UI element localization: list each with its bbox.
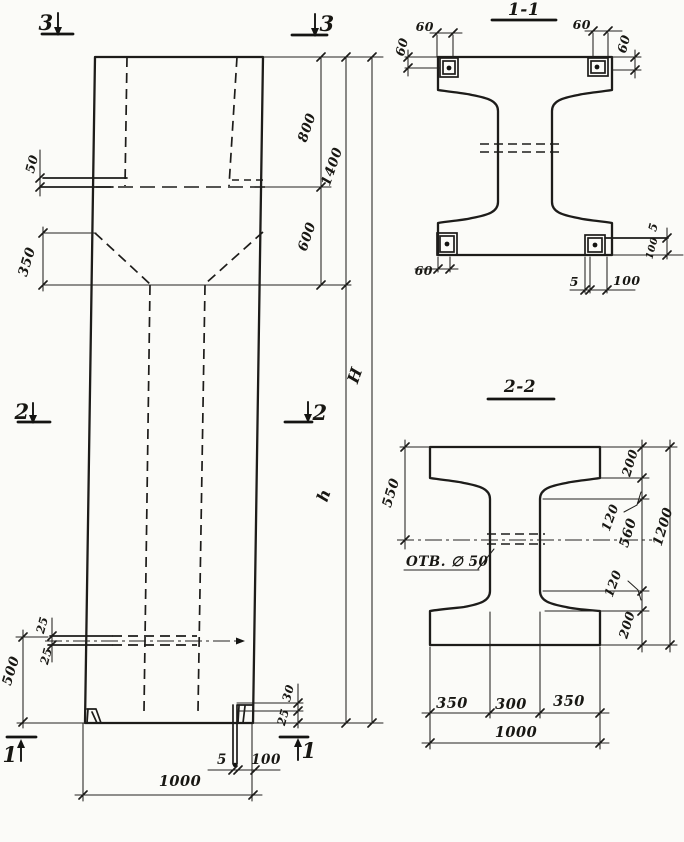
dim-200-top: 200 bbox=[618, 447, 641, 479]
section-2-label-left: 2 bbox=[13, 399, 29, 424]
section-2-label-right: 2 bbox=[311, 400, 327, 425]
anchor-stud-dot bbox=[447, 66, 452, 71]
section-3-label-right: 3 bbox=[319, 11, 334, 36]
dim-60-top-right: 60 bbox=[573, 17, 591, 32]
anchor-stud-dot bbox=[595, 65, 600, 70]
dim-1000-bottom: 1000 bbox=[495, 724, 537, 741]
i-section-outline bbox=[438, 57, 612, 255]
section-marker-arrows bbox=[21, 13, 315, 761]
i-section-outline bbox=[430, 447, 600, 645]
anchor-stud-dot bbox=[445, 242, 450, 247]
marker-arrowhead-icon bbox=[17, 739, 25, 748]
section-2-2: 2-2 550 ОТВ. ∅ 50 200 120 560 120 200 12… bbox=[379, 377, 677, 749]
drawing-page: 3 3 2 2 1 1 50 350 800 1400 600 H h 25 2… bbox=[0, 0, 684, 842]
dim-60-top-left: 60 bbox=[416, 19, 434, 34]
dim-5-side: 5 bbox=[645, 221, 661, 233]
section-2-2-title: 2-2 bbox=[503, 377, 536, 397]
centerline-arrowhead-icon bbox=[236, 638, 245, 645]
dim-plate-25-lower: 25 bbox=[37, 646, 55, 667]
hole-hidden-lines bbox=[480, 144, 563, 152]
column-details bbox=[40, 178, 253, 764]
dim-1200-right: 1200 bbox=[650, 505, 677, 548]
section-marker-bars bbox=[7, 34, 327, 737]
section-1-label-left: 1 bbox=[2, 742, 17, 767]
dim-550-left: 550 bbox=[379, 476, 403, 509]
column-outline bbox=[85, 57, 263, 723]
dim-width-1000: 1000 bbox=[159, 773, 201, 790]
section-1-1: 1-1 60 60 60 60 60 5 100 5 100 bbox=[392, 0, 683, 294]
dim-shaft-h: h bbox=[313, 486, 335, 504]
hole-hidden-lines bbox=[487, 534, 545, 544]
section-1-label-right: 1 bbox=[301, 738, 316, 763]
elevation-view: 3 3 2 2 1 1 50 350 800 1400 600 H h 25 2… bbox=[0, 10, 383, 801]
drawing-canvas: 3 3 2 2 1 1 50 350 800 1400 600 H h 25 2… bbox=[0, 0, 684, 842]
dim-cap-600: 600 bbox=[295, 220, 320, 253]
dim-100-side: 100 bbox=[644, 236, 660, 260]
anchor-stud-dot bbox=[593, 243, 598, 248]
dim-60-right: 60 bbox=[614, 33, 633, 55]
dim-100-bottom: 100 bbox=[613, 273, 641, 288]
dim-560-right: 560 bbox=[616, 516, 640, 549]
section-3-label-left: 3 bbox=[38, 10, 53, 35]
dimension-lines bbox=[405, 31, 683, 293]
dim-base-plate-5: 5 bbox=[217, 752, 227, 768]
dim-350-right: 350 bbox=[553, 693, 585, 710]
dim-base-plate-100: 100 bbox=[251, 752, 281, 768]
dim-haunch-350: 350 bbox=[15, 245, 39, 278]
dim-120-top: 120 bbox=[598, 502, 622, 533]
dim-cap-800: 800 bbox=[295, 111, 320, 144]
dim-120-bottom: 120 bbox=[601, 568, 625, 599]
dim-5-bottom: 5 bbox=[570, 274, 579, 289]
dim-cap-1400: 1400 bbox=[318, 145, 346, 188]
section-1-1-title: 1-1 bbox=[508, 0, 540, 20]
dim-plate-50: 50 bbox=[22, 153, 41, 175]
hidden-lines bbox=[95, 57, 263, 711]
dim-60-bottom-left: 60 bbox=[415, 263, 433, 278]
dim-350-left: 350 bbox=[436, 695, 468, 712]
hole-callout-label: ОТВ. ∅ 50 bbox=[406, 554, 488, 570]
dim-200-bottom: 200 bbox=[615, 609, 638, 641]
dim-corbel-25: 25 bbox=[274, 707, 292, 728]
dim-plate-25-upper: 25 bbox=[33, 615, 51, 636]
dimension-ticks bbox=[19, 53, 376, 799]
dim-300-center: 300 bbox=[495, 696, 527, 713]
dim-base-500: 500 bbox=[0, 654, 23, 687]
dim-corbel-30: 30 bbox=[279, 683, 297, 703]
